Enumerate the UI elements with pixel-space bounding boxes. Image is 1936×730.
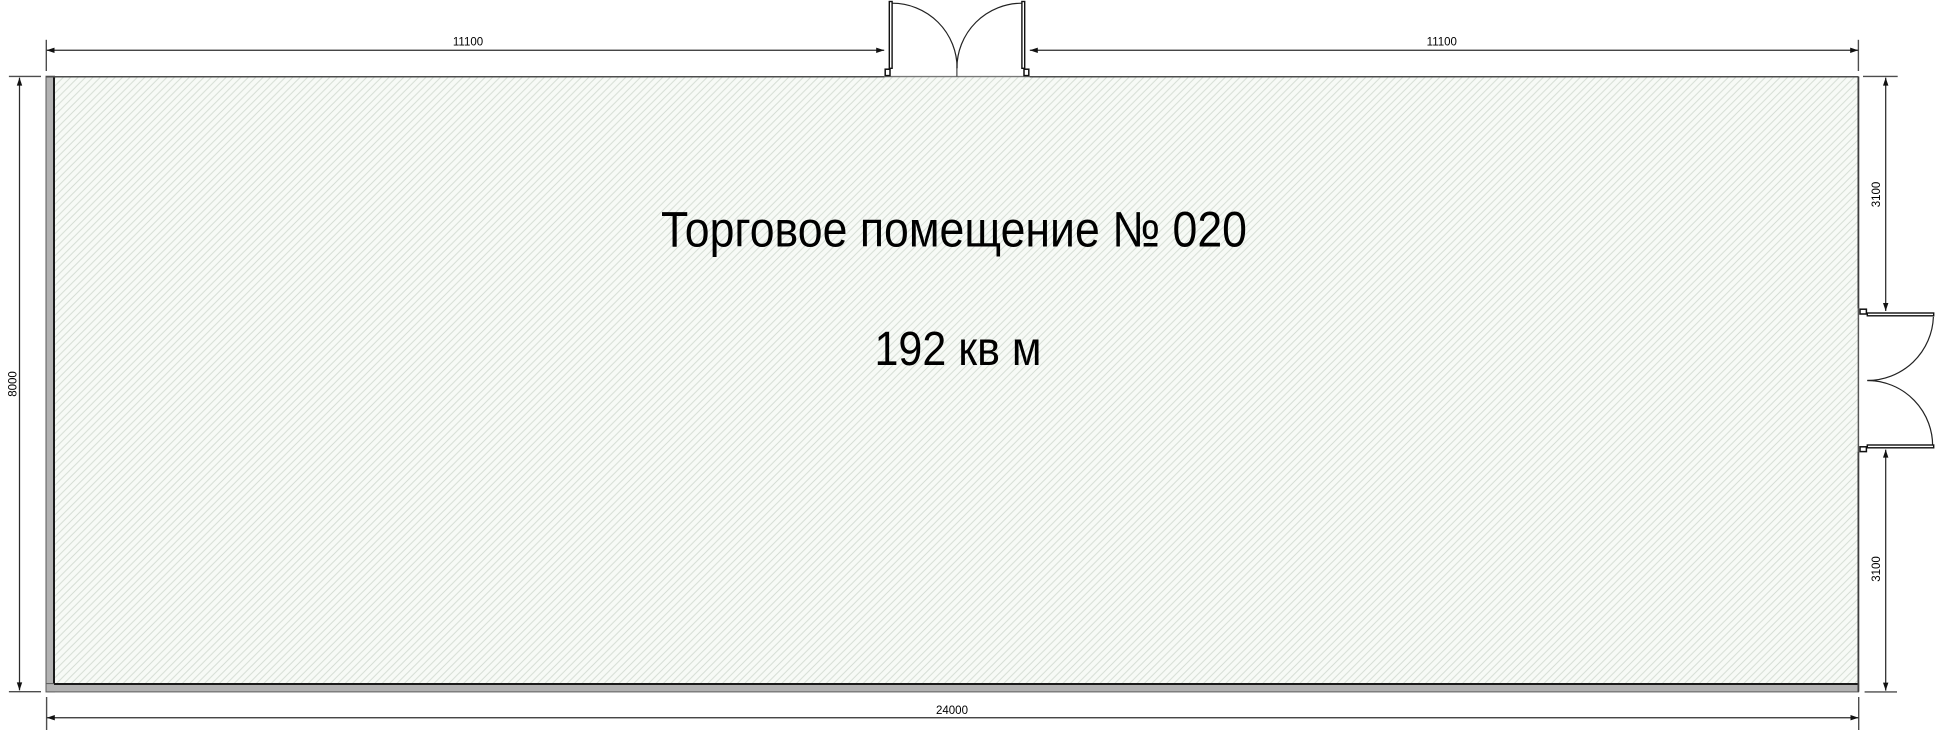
svg-text:Торговое помещение № 020: Торговое помещение № 020 xyxy=(661,202,1247,258)
svg-text:3100: 3100 xyxy=(1871,556,1883,582)
svg-text:24000: 24000 xyxy=(936,705,968,717)
svg-text:8000: 8000 xyxy=(8,371,20,397)
svg-text:3100: 3100 xyxy=(1871,182,1883,208)
svg-text:11100: 11100 xyxy=(453,36,483,48)
svg-text:192 кв м: 192 кв м xyxy=(875,323,1042,376)
svg-text:11100: 11100 xyxy=(1427,36,1457,48)
